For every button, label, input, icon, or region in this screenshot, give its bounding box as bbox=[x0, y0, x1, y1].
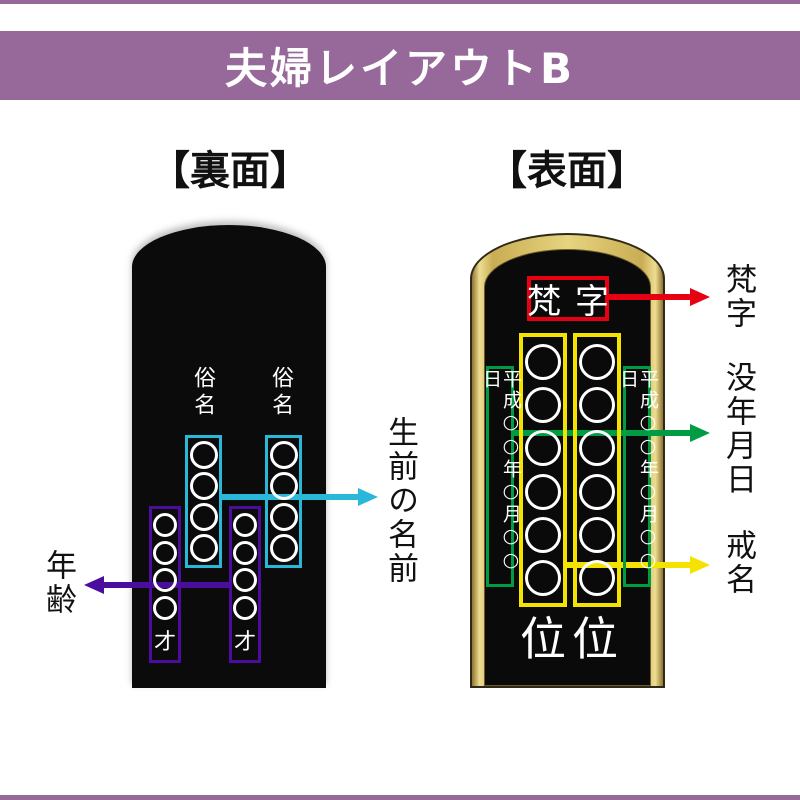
front-side-heading: 【表面】 bbox=[447, 138, 687, 196]
placeholder-circle bbox=[579, 430, 615, 466]
back-side-heading: 【裏面】 bbox=[110, 138, 350, 196]
page-root: 夫婦レイアウトB 【裏面】 【表面】 才 才 梵字 平成○○年○月○○日 平成○… bbox=[0, 0, 800, 800]
placeholder-circle bbox=[579, 344, 615, 380]
placeholder-circle bbox=[525, 387, 561, 423]
placeholder-circle bbox=[233, 513, 257, 537]
placeholder-circle bbox=[579, 517, 615, 553]
age-suffix-char: 才 bbox=[232, 624, 258, 660]
zokumyo-label-right: 俗名 bbox=[269, 366, 292, 420]
placeholder-circle bbox=[190, 503, 218, 531]
placeholder-circle bbox=[190, 472, 218, 500]
death-date-arrowhead-icon bbox=[690, 424, 710, 442]
placeholder-circle bbox=[525, 344, 561, 380]
bottom-border-strip bbox=[0, 795, 800, 800]
annotation-bonji: 梵字 bbox=[722, 263, 753, 331]
kaimyo-box-right bbox=[573, 333, 621, 607]
living-name-box-right bbox=[265, 435, 302, 568]
age-arrowhead-icon bbox=[84, 576, 104, 594]
page-title: 夫婦レイアウトB bbox=[225, 35, 575, 96]
bonji-box: 梵字 bbox=[527, 276, 609, 321]
age-box-right: 才 bbox=[229, 506, 261, 663]
placeholder-circle bbox=[525, 560, 561, 596]
placeholder-circle bbox=[270, 503, 298, 531]
rank-char-left: 位 bbox=[516, 603, 570, 669]
placeholder-circle bbox=[233, 541, 257, 565]
annotation-death-date: 没年月日 bbox=[722, 361, 753, 497]
placeholder-circle bbox=[153, 513, 177, 537]
kaimyo-arrowhead-icon bbox=[690, 556, 710, 574]
placeholder-circle bbox=[270, 472, 298, 500]
annotation-age: 年齢 bbox=[42, 549, 73, 617]
placeholder-circle bbox=[270, 441, 298, 469]
kanji-placeholder-circles bbox=[523, 337, 563, 603]
kanji-placeholder-circles bbox=[577, 337, 617, 603]
annotation-living-name: 生前の名前 bbox=[384, 416, 415, 586]
placeholder-circle bbox=[579, 474, 615, 510]
death-date-box-right: 平成○○年○月○○日 bbox=[623, 366, 651, 587]
placeholder-circle bbox=[579, 387, 615, 423]
placeholder-circle bbox=[525, 517, 561, 553]
placeholder-circle bbox=[233, 596, 257, 620]
placeholder-circle bbox=[190, 441, 218, 469]
placeholder-circle bbox=[270, 534, 298, 562]
kanji-placeholder-circles bbox=[152, 509, 178, 624]
title-banner: 夫婦レイアウトB bbox=[0, 31, 800, 100]
placeholder-circle bbox=[579, 560, 615, 596]
placeholder-circle bbox=[525, 474, 561, 510]
kanji-placeholder-circles bbox=[268, 438, 299, 565]
placeholder-circle bbox=[190, 534, 218, 562]
bonji-box-text: 梵字 bbox=[527, 274, 623, 323]
placeholder-circle bbox=[153, 596, 177, 620]
placeholder-circle bbox=[233, 568, 257, 592]
placeholder-circle bbox=[153, 541, 177, 565]
kaimyo-box-left bbox=[519, 333, 567, 607]
age-suffix-char: 才 bbox=[152, 624, 178, 660]
death-date-text: 平成○○年○月○○日 bbox=[617, 369, 657, 584]
kanji-placeholder-circles bbox=[188, 438, 219, 565]
living-name-arrowhead-icon bbox=[358, 488, 378, 506]
placeholder-circle bbox=[153, 568, 177, 592]
living-name-box-left bbox=[185, 435, 222, 568]
placeholder-circle bbox=[525, 430, 561, 466]
top-border-strip bbox=[0, 0, 800, 4]
rank-char-right: 位 bbox=[568, 603, 622, 669]
death-date-text: 平成○○年○月○○日 bbox=[480, 369, 520, 584]
bonji-arrowhead-icon bbox=[690, 288, 710, 306]
kanji-placeholder-circles bbox=[232, 509, 258, 624]
age-box-left: 才 bbox=[149, 506, 181, 663]
zokumyo-label-left: 俗名 bbox=[191, 366, 214, 420]
death-date-box-left: 平成○○年○月○○日 bbox=[486, 366, 514, 587]
annotation-buddhist-name: 戒名 bbox=[722, 529, 753, 597]
